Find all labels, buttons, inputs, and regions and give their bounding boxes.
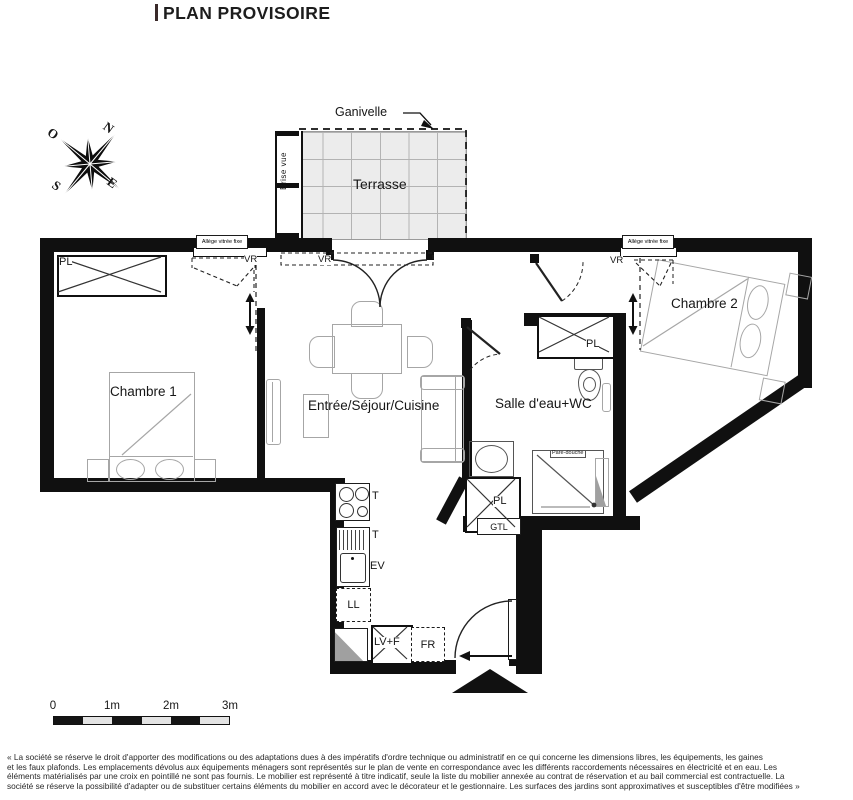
room-label-chambre1: Chambre 1 — [110, 385, 177, 399]
sink-drainboard — [339, 530, 365, 550]
corner-cabinet — [334, 628, 368, 662]
allege-label-left: Allège vitrée fixe — [196, 235, 248, 249]
nightstand — [87, 459, 109, 482]
burner — [339, 503, 354, 518]
gtl-label: GTL — [490, 522, 508, 532]
washbasin-bowl — [475, 445, 508, 473]
chair — [351, 373, 383, 399]
door-hinge — [530, 254, 539, 263]
gtl-box: GTL — [477, 518, 521, 535]
wall-entry-right — [516, 530, 542, 674]
vr-label-left-window: VR — [244, 255, 257, 265]
ganivelle-label: Ganivelle — [335, 106, 387, 119]
chair — [407, 336, 433, 368]
pillow — [116, 459, 145, 480]
closet-chambre1 — [57, 255, 167, 297]
room-label-salle-eau: Salle d'eau+WC — [495, 397, 592, 411]
shower-side-panel — [595, 458, 609, 507]
allege-text: Allège vitrée fixe — [202, 239, 242, 245]
fr-label: FR — [421, 639, 436, 651]
fridge: FR — [411, 627, 445, 662]
room-label-sejour: Entrée/Séjour/Cuisine — [308, 399, 439, 413]
scale-bar — [53, 716, 230, 725]
closet-bathroom — [537, 315, 615, 359]
lvf-label: LV+F — [374, 637, 400, 648]
logo-fragment — [155, 4, 158, 21]
compass-east-label: E — [105, 175, 120, 191]
page-title: PLAN PROVISOIRE — [163, 5, 330, 23]
compass-west-label: O — [45, 125, 61, 141]
ll-label: LL — [347, 599, 359, 611]
wall-left — [40, 238, 54, 492]
compass-south-label: S — [50, 178, 63, 193]
chair — [309, 336, 335, 368]
nightstand — [785, 273, 812, 300]
closet-pl-label: PL — [493, 496, 506, 507]
disclaimer: « La société se réserve le droit d'appor… — [7, 753, 852, 791]
pillow — [155, 459, 184, 480]
pare-douche-label: Pare-douche — [550, 450, 586, 458]
vr-label-right-window: VR — [610, 256, 623, 266]
t-label-cooktop: T — [372, 491, 379, 502]
bed-chambre2 — [640, 259, 786, 376]
door-hinge — [426, 250, 434, 260]
scale-tick-0: 0 — [50, 701, 56, 713]
scale-tick-3m: 3m — [222, 701, 238, 713]
closet-pl-label: PL — [586, 339, 599, 350]
nightstand — [194, 459, 216, 482]
allege-text: Allège vitrée fixe — [628, 239, 668, 245]
disclaimer-line: société se réserve la possibilité d'adap… — [7, 782, 852, 792]
toilet-bowl-inner — [583, 377, 596, 392]
vr-label-french-door: VR — [318, 255, 331, 265]
nightstand — [759, 377, 786, 404]
terrace-label: Terrasse — [353, 177, 407, 191]
towel-rail — [602, 383, 611, 412]
room-label-chambre2: Chambre 2 — [671, 297, 738, 311]
wall-partition-chambre1 — [257, 308, 265, 478]
bed-chambre2-group — [620, 239, 826, 425]
floor-plan-page: PLAN PROVISOIRE O N S E Brise vue Ganive… — [0, 0, 853, 800]
allege-label-right: Allège vitrée fixe — [622, 235, 674, 249]
scale-tick-2m: 2m — [163, 701, 179, 713]
dining-table — [332, 324, 402, 374]
brise-vue-label: Brise vue — [280, 152, 288, 190]
compass-north-label: N — [101, 119, 116, 135]
scale-tick-1m: 1m — [104, 701, 120, 713]
burner — [357, 506, 368, 517]
wall-top-left — [40, 238, 332, 252]
entrance-door-leaf — [508, 599, 517, 660]
door-hinge — [461, 318, 471, 328]
shower-tray — [532, 450, 604, 514]
burner — [355, 487, 369, 501]
sofa-back — [455, 376, 464, 462]
washing-machine: LL — [336, 588, 371, 622]
burner — [339, 487, 354, 502]
chair — [351, 301, 383, 327]
ev-label: EV — [370, 561, 385, 572]
closet-pl-label: PL — [59, 257, 72, 268]
radiator — [266, 379, 281, 445]
t-label-counter: T — [372, 530, 379, 541]
